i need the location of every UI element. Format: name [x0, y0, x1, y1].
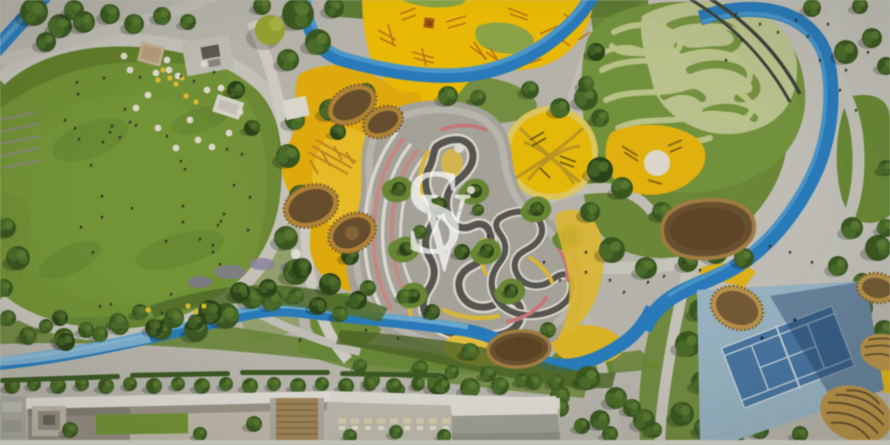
svg-text:V: V	[417, 168, 471, 294]
